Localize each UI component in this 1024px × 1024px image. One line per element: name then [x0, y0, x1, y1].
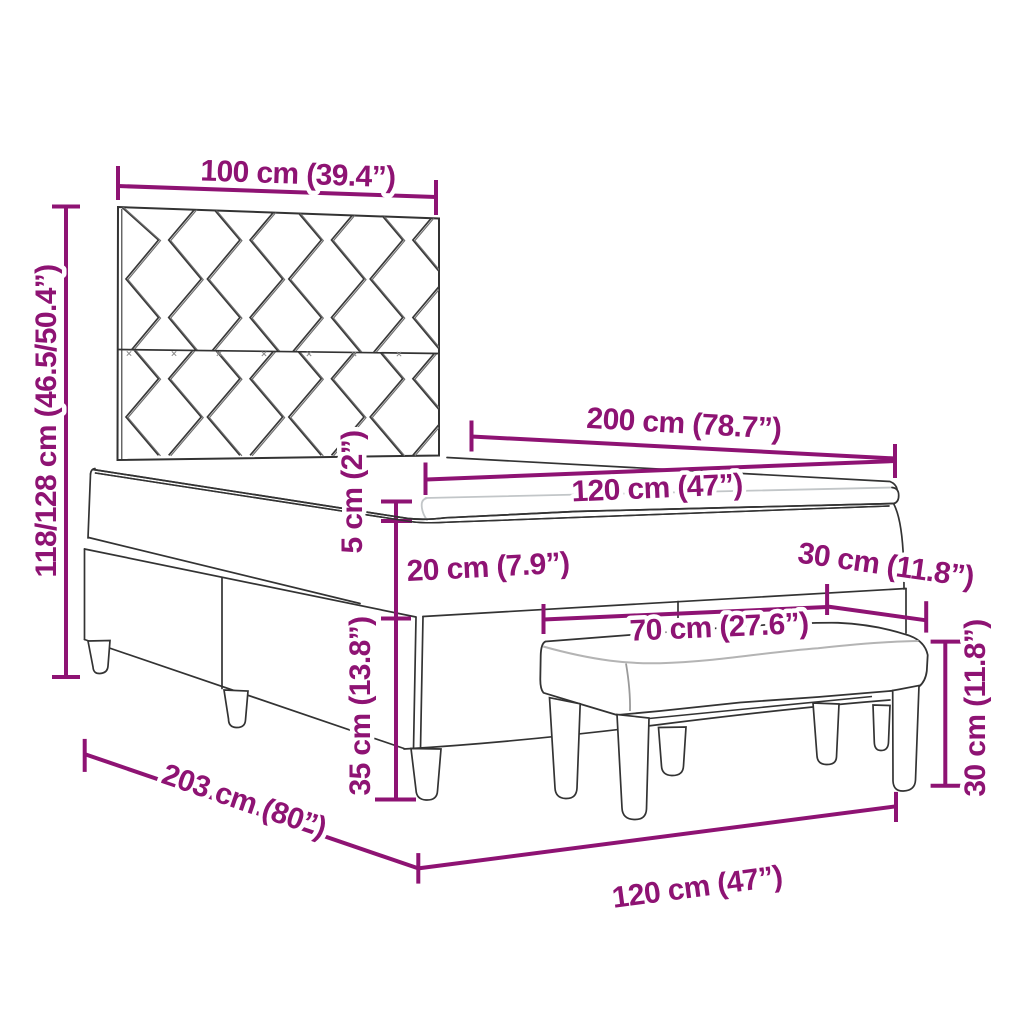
svg-text:203 cm (80”): 203 cm (80”) [158, 758, 331, 845]
svg-text:30 cm (11.8”): 30 cm (11.8”) [796, 537, 976, 594]
svg-text:200 cm (78.7”): 200 cm (78.7”) [586, 402, 783, 446]
svg-text:5 cm (2”): 5 cm (2”) [336, 431, 369, 554]
svg-text:35 cm (13.8”): 35 cm (13.8”) [344, 617, 377, 796]
svg-text:118/128 cm (46.5/50.4”): 118/128 cm (46.5/50.4”) [30, 264, 63, 577]
svg-text:20 cm (7.9”): 20 cm (7.9”) [406, 547, 570, 588]
svg-text:30 cm (11.8”): 30 cm (11.8”) [959, 619, 992, 796]
svg-text:120 cm (47”): 120 cm (47”) [571, 468, 744, 508]
svg-text:120 cm (47”): 120 cm (47”) [610, 860, 784, 915]
svg-text:100 cm (39.4”): 100 cm (39.4”) [200, 154, 396, 194]
